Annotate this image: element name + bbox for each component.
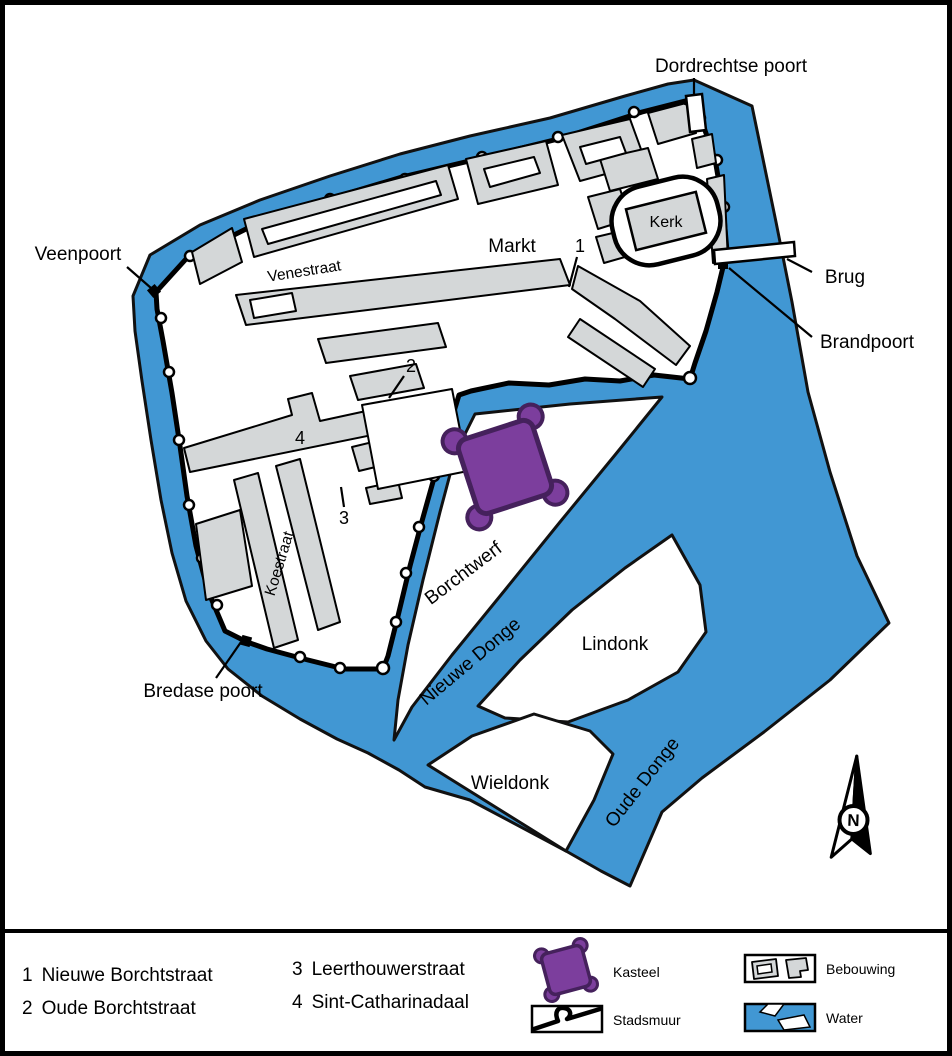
label-wieldonk: Wieldonk bbox=[471, 773, 550, 794]
legend-label-stadsmuur: Stadsmuur bbox=[613, 1012, 681, 1028]
town-map: Dordrechtse poort Veenpoort Brug Brandpo… bbox=[0, 0, 952, 1056]
legend-label-kasteel: Kasteel bbox=[613, 964, 660, 980]
kasteel-legend-icon bbox=[533, 937, 599, 1003]
label-kerk: Kerk bbox=[650, 214, 684, 231]
label-brug: Brug bbox=[825, 267, 865, 288]
map-page: Dordrechtse poort Veenpoort Brug Brandpo… bbox=[0, 0, 952, 1056]
compass-north-arrow: N bbox=[831, 755, 874, 858]
legend: 1Nieuwe Borchtstraat 2Oude Borchtstraat … bbox=[22, 937, 895, 1032]
legend-street-3: 3Leerthouwerstraat bbox=[292, 959, 465, 980]
north-letter: N bbox=[847, 811, 860, 830]
label-veenpoort: Veenpoort bbox=[35, 244, 122, 265]
brug-pointer bbox=[787, 259, 812, 272]
bebouwing-legend-icon bbox=[745, 955, 815, 982]
label-markt: Markt bbox=[488, 236, 536, 257]
marker-1: 1 bbox=[575, 236, 585, 256]
stadsmuur-legend-icon bbox=[532, 1006, 602, 1032]
legend-street-2: 2Oude Borchtstraat bbox=[22, 998, 196, 1019]
marker-3: 3 bbox=[339, 508, 349, 528]
marker-2: 2 bbox=[406, 356, 416, 376]
label-lindonk: Lindonk bbox=[582, 634, 649, 655]
label-brandpoort: Brandpoort bbox=[820, 332, 915, 353]
label-bredase-poort: Bredase poort bbox=[143, 681, 263, 702]
marker-4: 4 bbox=[295, 428, 305, 448]
legend-label-bebouwing: Bebouwing bbox=[826, 961, 895, 977]
legend-street-4: 4Sint-Catharinadaal bbox=[292, 992, 469, 1013]
water-legend-icon bbox=[745, 1004, 815, 1031]
legend-street-1: 1Nieuwe Borchtstraat bbox=[22, 965, 213, 986]
legend-label-water: Water bbox=[826, 1010, 863, 1026]
dordrechtse-street-stub bbox=[686, 94, 706, 132]
label-dordrechtse-poort: Dordrechtse poort bbox=[655, 56, 808, 77]
